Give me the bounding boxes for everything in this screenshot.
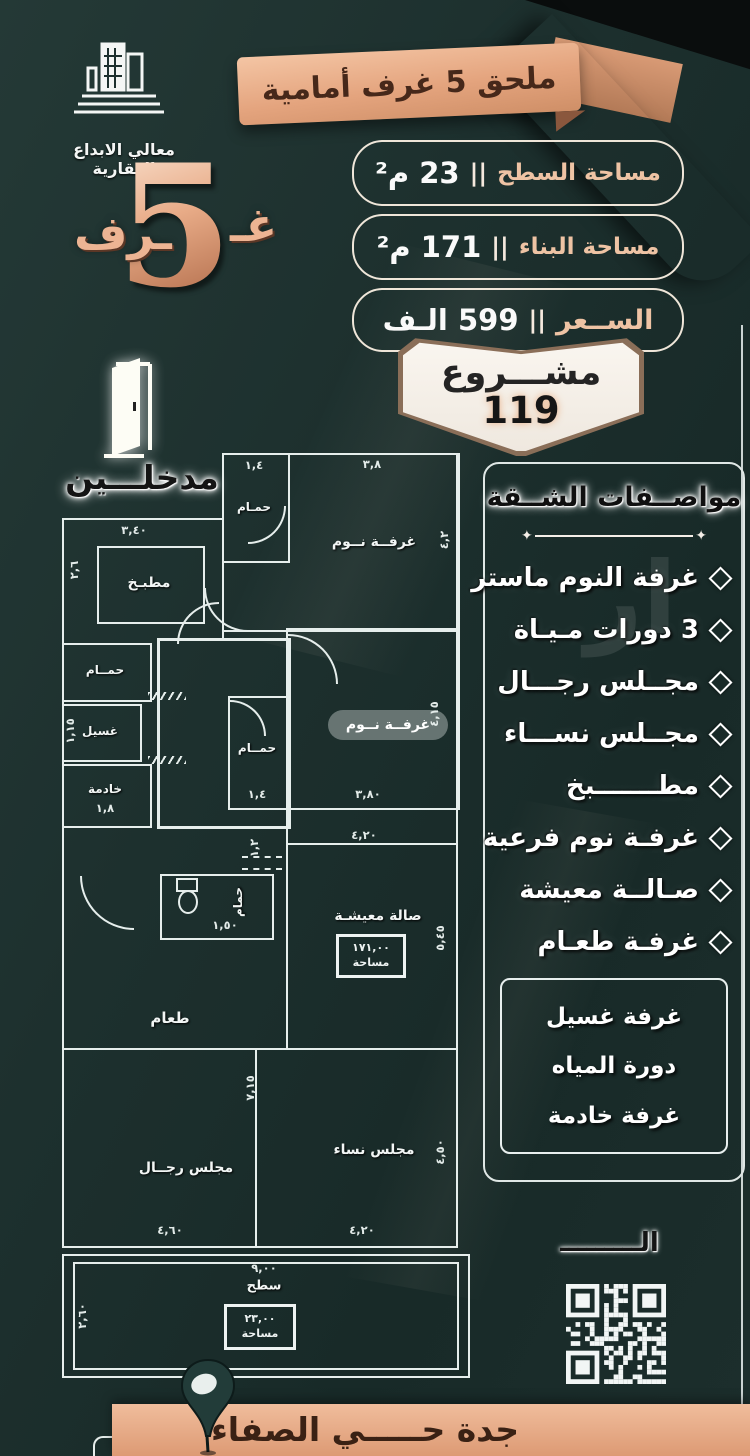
dashed-door <box>242 868 282 870</box>
features-title: مواصــفات الشــقة <box>485 482 743 513</box>
top-banner-text: ملحق 5 غرف أمامية <box>261 60 557 108</box>
diamond-bullet-icon <box>708 774 732 798</box>
wall <box>62 518 64 1248</box>
features-extra-box: غرفة غسيل دورة المياه غرفة خادمة <box>500 978 728 1154</box>
buildings-icon <box>68 38 172 136</box>
dimension: ٣,٤٠ <box>121 523 146 537</box>
room-label-laundry: غسيل <box>82 724 118 738</box>
feature-item: غرفـة طعـام <box>499 916 729 968</box>
rooms-count-right: غـ <box>230 198 277 252</box>
feature-text: صـالــة معيشة <box>519 875 699 905</box>
extra-feature-text: غرفة خادمة <box>548 1103 680 1129</box>
feature-text: غرفة النوم ماستر <box>471 563 699 593</box>
info-value: 599 الـف <box>383 303 519 337</box>
dimension: ٢,٦٠ <box>75 1303 89 1328</box>
wall <box>62 518 224 520</box>
location-pin-icon <box>178 1358 238 1456</box>
door-icon <box>86 350 186 462</box>
wall <box>286 808 288 1050</box>
star-icon: ✦ <box>519 528 535 544</box>
diamond-bullet-icon <box>708 878 732 902</box>
dimension: ٣,٨ <box>363 457 381 471</box>
room-label-maid: خادمة <box>88 782 122 796</box>
dimension: ٤,٦٠ <box>157 1223 182 1237</box>
room-label-bath: حمـام <box>237 500 271 514</box>
dimension: ٥,٤٥ <box>433 925 447 950</box>
toilet-fixture <box>178 890 198 914</box>
dimension: ٤,٥٠ <box>433 1139 447 1164</box>
dimension: ١,٨ <box>96 801 114 815</box>
wall <box>62 1048 456 1050</box>
feature-item: مجــلس نســـاء <box>499 708 729 760</box>
star-icon: ✦ <box>693 528 709 544</box>
feature-text: 3 دورات مـيـاة <box>514 615 699 645</box>
features-list: غرفة النوم ماستر 3 دورات مـيـاة مجــلس ر… <box>499 552 729 968</box>
diamond-bullet-icon <box>708 618 732 642</box>
floor-plan: حمـام غرفــة نــوم مطبـخ حمــام غسيل خاد… <box>62 450 470 1382</box>
project-number: 119 <box>482 391 559 432</box>
info-divider: || <box>470 159 488 187</box>
feature-text: غرفـة نوم فرعية <box>483 823 699 853</box>
rooms-count-graphic: غـ 5 ـرف <box>48 160 276 350</box>
extra-feature-text: غرفة غسيل <box>546 1004 682 1030</box>
diamond-bullet-icon <box>708 930 732 954</box>
radiator-symbol <box>148 692 186 700</box>
qr-caption: الـــــــــ <box>542 1228 677 1258</box>
dimension: ٤,١٥ <box>427 701 441 726</box>
wall <box>456 453 458 1246</box>
roof-area-box: ٢٣,٠٠ مساحة <box>224 1304 296 1350</box>
wall <box>286 843 456 845</box>
info-divider: || <box>491 233 509 261</box>
room-label-majlis-men: مجلس رجــال <box>139 1160 233 1176</box>
room-label-bath: حمــام <box>86 663 124 677</box>
dimension: ١,٤ <box>248 787 266 801</box>
dimension: ٤,٢ <box>437 531 451 549</box>
room-label-dining: طعام <box>150 1009 189 1027</box>
real-estate-poster: معالي الابداع العقارية ملحق 5 غرف أمامية… <box>0 0 750 1456</box>
dimension: ٩,٠٠ <box>251 1261 276 1275</box>
feature-item: 3 دورات مـيـاة <box>499 604 729 656</box>
feature-item: مطـــــــبخ <box>499 760 729 812</box>
room-label-bath: حمــام <box>238 741 276 755</box>
room-label-wc: حمام <box>231 887 245 917</box>
dimension: ١,١٥ <box>63 718 77 743</box>
dimension: ١,٥٠ <box>212 918 237 932</box>
room-label-bedroom: غرفــة نــوم <box>332 534 416 550</box>
feature-item: غرفة النوم ماستر <box>499 552 729 604</box>
living-area-value: ١٧١,٠٠ <box>352 941 390 956</box>
room-label-kitchen: مطبـخ <box>128 575 171 591</box>
info-value: 171 م² <box>377 230 482 264</box>
info-label: مساحة البناء <box>519 234 660 260</box>
feature-item: مجــلس رجـــال <box>499 656 729 708</box>
diamond-bullet-icon <box>708 670 732 694</box>
feature-item: غرفـة نوم فرعية <box>499 812 729 864</box>
feature-text: مطـــــــبخ <box>566 771 699 801</box>
living-area-label: مساحة <box>353 956 390 971</box>
living-area-box: ١٧١,٠٠ مساحة <box>336 934 406 978</box>
info-label: مساحة السطح <box>497 160 661 186</box>
radiator-symbol <box>148 756 186 764</box>
rooms-count-left: ـرف <box>74 206 172 260</box>
dimension: ٢,٦ <box>67 561 81 579</box>
diamond-bullet-icon <box>708 722 732 746</box>
diamond-bullet-icon <box>708 566 732 590</box>
dimension: ٣,٨٠ <box>355 787 380 801</box>
info-row-surface-area: مساحة السطح || 23 م² <box>352 140 684 206</box>
info-label: الســعر <box>556 305 653 336</box>
feature-item: صـالــة معيشة <box>499 864 729 916</box>
dimension: ٤,٢٠ <box>349 1223 374 1237</box>
room-label-living: صالة معيشـة <box>334 908 421 924</box>
feature-text: مجــلس نســـاء <box>504 719 699 749</box>
feature-text: مجــلس رجـــال <box>497 667 699 697</box>
qr-code <box>566 1284 666 1384</box>
diamond-bullet-icon <box>708 826 732 850</box>
info-row-build-area: مساحة البناء || 171 م² <box>352 214 684 280</box>
features-panel: مواصــفات الشــقة ✦ ✦ غرفة النوم ماستر 3… <box>483 462 745 1182</box>
divider-line <box>535 535 694 537</box>
dimension: ١,٤ <box>245 458 263 472</box>
info-row-price: الســعر || 599 الـف <box>352 288 684 352</box>
dimension: ٧,١٥ <box>243 1075 257 1100</box>
roof-area-value: ٢٣,٠٠ <box>244 1312 275 1327</box>
roof-area-label: مساحة <box>242 1327 279 1342</box>
wall <box>62 1246 458 1248</box>
project-title: مشـــروع <box>441 356 602 391</box>
feature-text: غرفـة طعـام <box>537 927 699 957</box>
info-value: 23 م² <box>375 156 459 190</box>
door-arc <box>80 876 134 930</box>
project-badge: مشـــروع 119 <box>398 332 644 456</box>
project-badge-inner: مشـــروع 119 <box>403 337 639 451</box>
info-divider: || <box>529 306 547 334</box>
room-label-roof: سطح <box>247 1279 282 1294</box>
dimension: ١,٢ <box>247 839 261 857</box>
dimension: ٤,٢٠ <box>351 828 376 842</box>
wall <box>62 764 152 828</box>
features-divider: ✦ ✦ <box>519 528 709 544</box>
extra-feature-text: دورة المياه <box>552 1053 676 1079</box>
room-label-majlis-women: مجلس نساء <box>333 1142 414 1158</box>
